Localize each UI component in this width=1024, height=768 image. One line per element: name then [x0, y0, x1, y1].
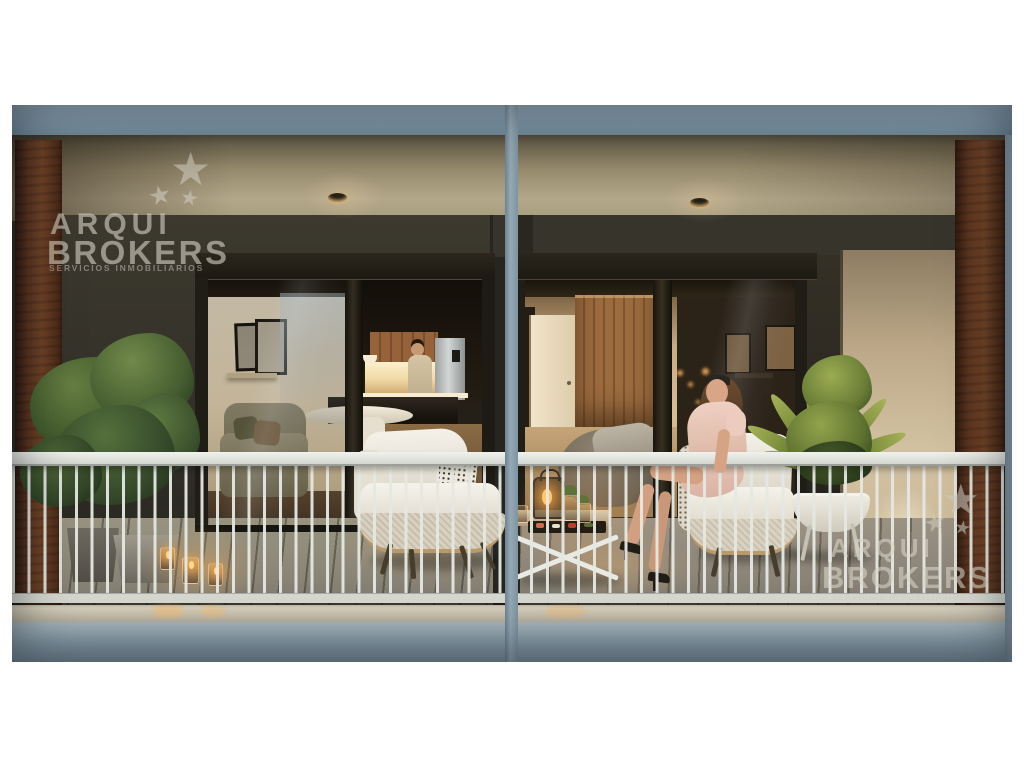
star-icon: ★ — [170, 146, 211, 192]
candle-reflection — [152, 604, 184, 618]
watermark-top-left: ★ ★ ★ ARQUI BROKERS SERVICIOS INMOBILIAR… — [42, 150, 242, 290]
watermark-tagline: SERVICIOS INMOBILIARIOS — [49, 263, 204, 273]
watermark-tagline: SERVICIOS INMOBILIARIOS — [832, 593, 967, 602]
standing-man — [408, 355, 432, 397]
fridge-dispenser — [452, 350, 460, 362]
watermark-bottom-right: ★ ★ ★ ARQUI BROKERS SERVICIOS INMOBILIAR… — [812, 483, 1012, 613]
central-concrete-pillar — [505, 105, 518, 662]
star-icon: ★ — [178, 187, 200, 211]
candle-reflection — [200, 605, 226, 617]
candle-reflection — [544, 605, 586, 618]
balcony-render-photo: ★ ★ ★ ARQUI BROKERS SERVICIOS INMOBILIAR… — [12, 105, 1012, 662]
timber-wardrobe — [575, 295, 657, 442]
star-icon: ★ — [952, 518, 972, 540]
door-handle — [567, 381, 571, 385]
star-icon: ★ — [942, 479, 980, 521]
recessed-downlight — [328, 193, 347, 202]
right-door-header — [508, 253, 817, 280]
real-estate-listing-image: ★ ★ ★ ARQUI BROKERS SERVICIOS INMOBILIAR… — [0, 0, 1024, 768]
recessed-downlight — [690, 198, 709, 207]
refrigerator — [435, 338, 465, 400]
lit-backsplash — [365, 362, 445, 393]
watermark-brand-bottom: BROKERS — [822, 560, 991, 596]
star-icon: ★ — [146, 180, 174, 210]
